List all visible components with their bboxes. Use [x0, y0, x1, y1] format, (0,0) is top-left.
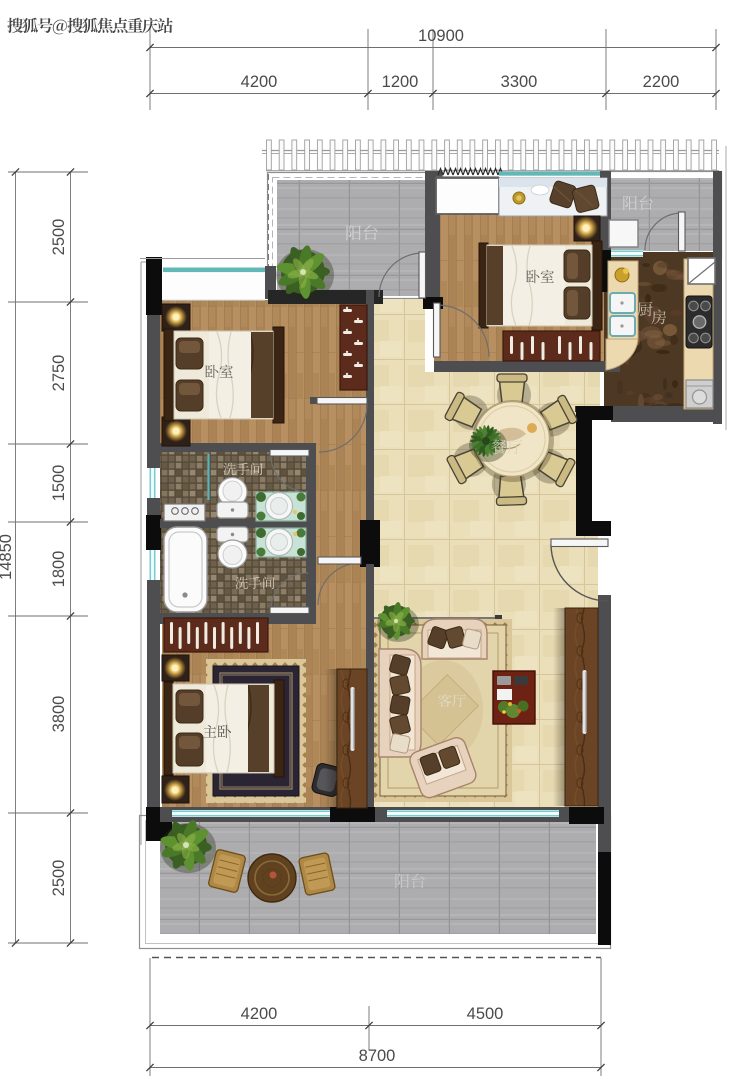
svg-text:4200: 4200 — [241, 73, 278, 91]
svg-text:4200: 4200 — [241, 1005, 278, 1023]
svg-text:8700: 8700 — [359, 1047, 396, 1065]
svg-text:2500: 2500 — [50, 860, 68, 897]
svg-text:1800: 1800 — [50, 551, 68, 588]
svg-text:2750: 2750 — [50, 355, 68, 392]
svg-text:14850: 14850 — [0, 534, 15, 580]
svg-text:3300: 3300 — [501, 73, 538, 91]
svg-text:1500: 1500 — [50, 465, 68, 502]
svg-text:4500: 4500 — [467, 1005, 504, 1023]
svg-text:1200: 1200 — [382, 73, 419, 91]
svg-text:2500: 2500 — [50, 219, 68, 256]
svg-text:2200: 2200 — [643, 73, 680, 91]
svg-text:10900: 10900 — [418, 27, 464, 45]
svg-text:3800: 3800 — [50, 696, 68, 733]
